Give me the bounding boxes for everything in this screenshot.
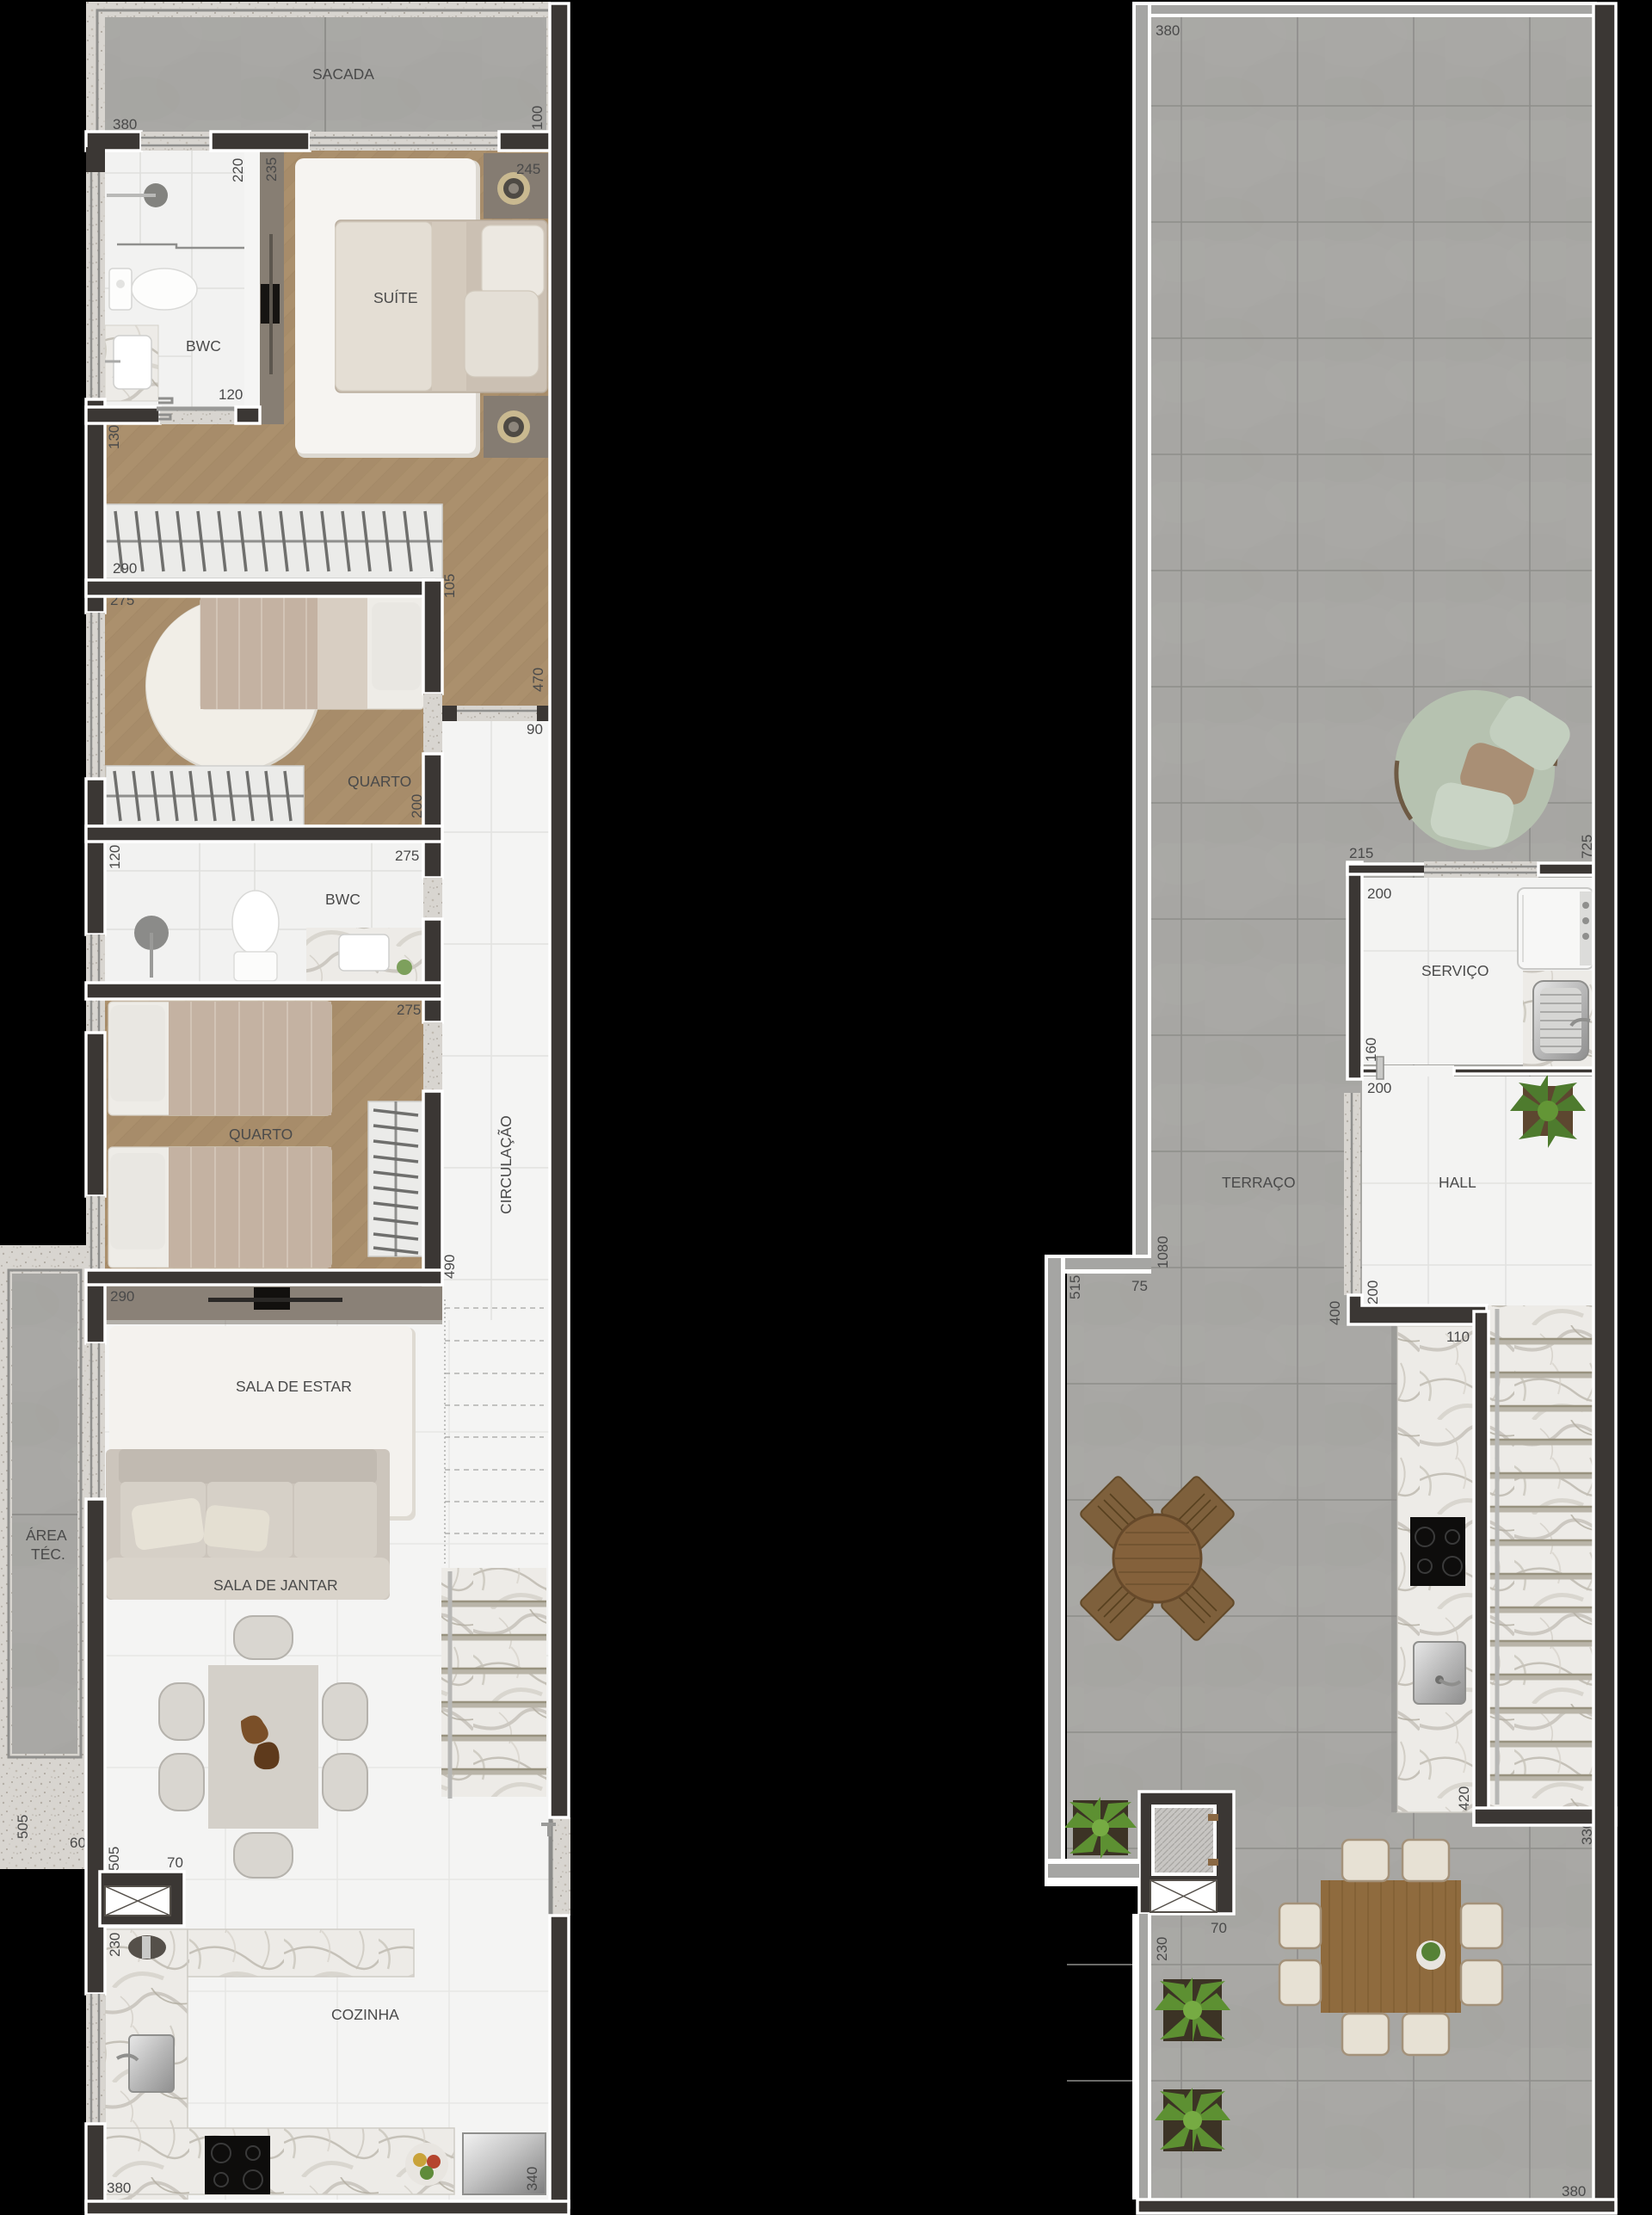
svg-text:TERRAÇO: TERRAÇO	[1222, 1174, 1296, 1191]
svg-text:QUARTO: QUARTO	[348, 773, 411, 790]
svg-text:SACADA: SACADA	[312, 65, 374, 83]
svg-text:420: 420	[1456, 1786, 1472, 1811]
svg-text:CIRCULAÇÃO: CIRCULAÇÃO	[496, 1115, 515, 1214]
svg-text:COZINHA: COZINHA	[331, 2006, 399, 2023]
svg-text:75: 75	[1131, 1278, 1148, 1294]
svg-text:90: 90	[527, 721, 543, 737]
svg-text:120: 120	[107, 845, 123, 869]
svg-text:70: 70	[1211, 1920, 1227, 1936]
svg-text:60: 60	[70, 1835, 86, 1851]
svg-text:1080: 1080	[1155, 1236, 1171, 1268]
svg-text:515: 515	[1067, 1275, 1083, 1299]
svg-text:SALA DE JANTAR: SALA DE JANTAR	[213, 1576, 338, 1594]
svg-text:490: 490	[441, 1255, 458, 1279]
svg-text:110: 110	[1446, 1329, 1470, 1345]
svg-text:230: 230	[107, 1933, 123, 1957]
svg-text:380: 380	[107, 2180, 131, 2196]
svg-text:290: 290	[113, 560, 137, 577]
svg-text:400: 400	[1327, 1301, 1343, 1325]
svg-text:200: 200	[1367, 885, 1391, 902]
svg-text:130: 130	[106, 425, 122, 449]
svg-text:120: 120	[219, 386, 243, 403]
svg-text:230: 230	[1154, 1937, 1170, 1961]
svg-text:215: 215	[1349, 845, 1373, 861]
svg-text:BWC: BWC	[186, 337, 221, 355]
svg-text:505: 505	[106, 1847, 122, 1871]
svg-text:340: 340	[524, 2167, 540, 2191]
svg-text:200: 200	[1365, 1280, 1381, 1305]
svg-text:200: 200	[1367, 1080, 1391, 1096]
svg-text:235: 235	[263, 157, 280, 182]
svg-text:HALL: HALL	[1439, 1174, 1476, 1191]
svg-text:70: 70	[167, 1854, 183, 1871]
svg-text:SALA DE ESTAR: SALA DE ESTAR	[236, 1378, 352, 1395]
svg-text:505: 505	[15, 1815, 31, 1839]
svg-text:220: 220	[230, 158, 246, 182]
svg-text:105: 105	[441, 574, 458, 598]
svg-text:ÁREA: ÁREA	[26, 1527, 67, 1544]
svg-text:290: 290	[110, 1288, 134, 1305]
svg-text:SERVIÇO: SERVIÇO	[1421, 962, 1489, 979]
svg-text:380: 380	[113, 116, 137, 133]
svg-text:QUARTO: QUARTO	[229, 1126, 293, 1143]
svg-text:SUÍTE: SUÍTE	[373, 289, 418, 306]
svg-text:275: 275	[395, 848, 419, 864]
svg-text:TÉC.: TÉC.	[31, 1546, 65, 1563]
svg-text:380: 380	[1562, 2183, 1586, 2200]
svg-text:380: 380	[1156, 22, 1180, 39]
svg-text:470: 470	[530, 668, 546, 692]
svg-text:BWC: BWC	[325, 891, 361, 908]
svg-text:275: 275	[397, 1002, 421, 1018]
svg-text:245: 245	[516, 161, 540, 177]
svg-text:100: 100	[529, 106, 546, 130]
